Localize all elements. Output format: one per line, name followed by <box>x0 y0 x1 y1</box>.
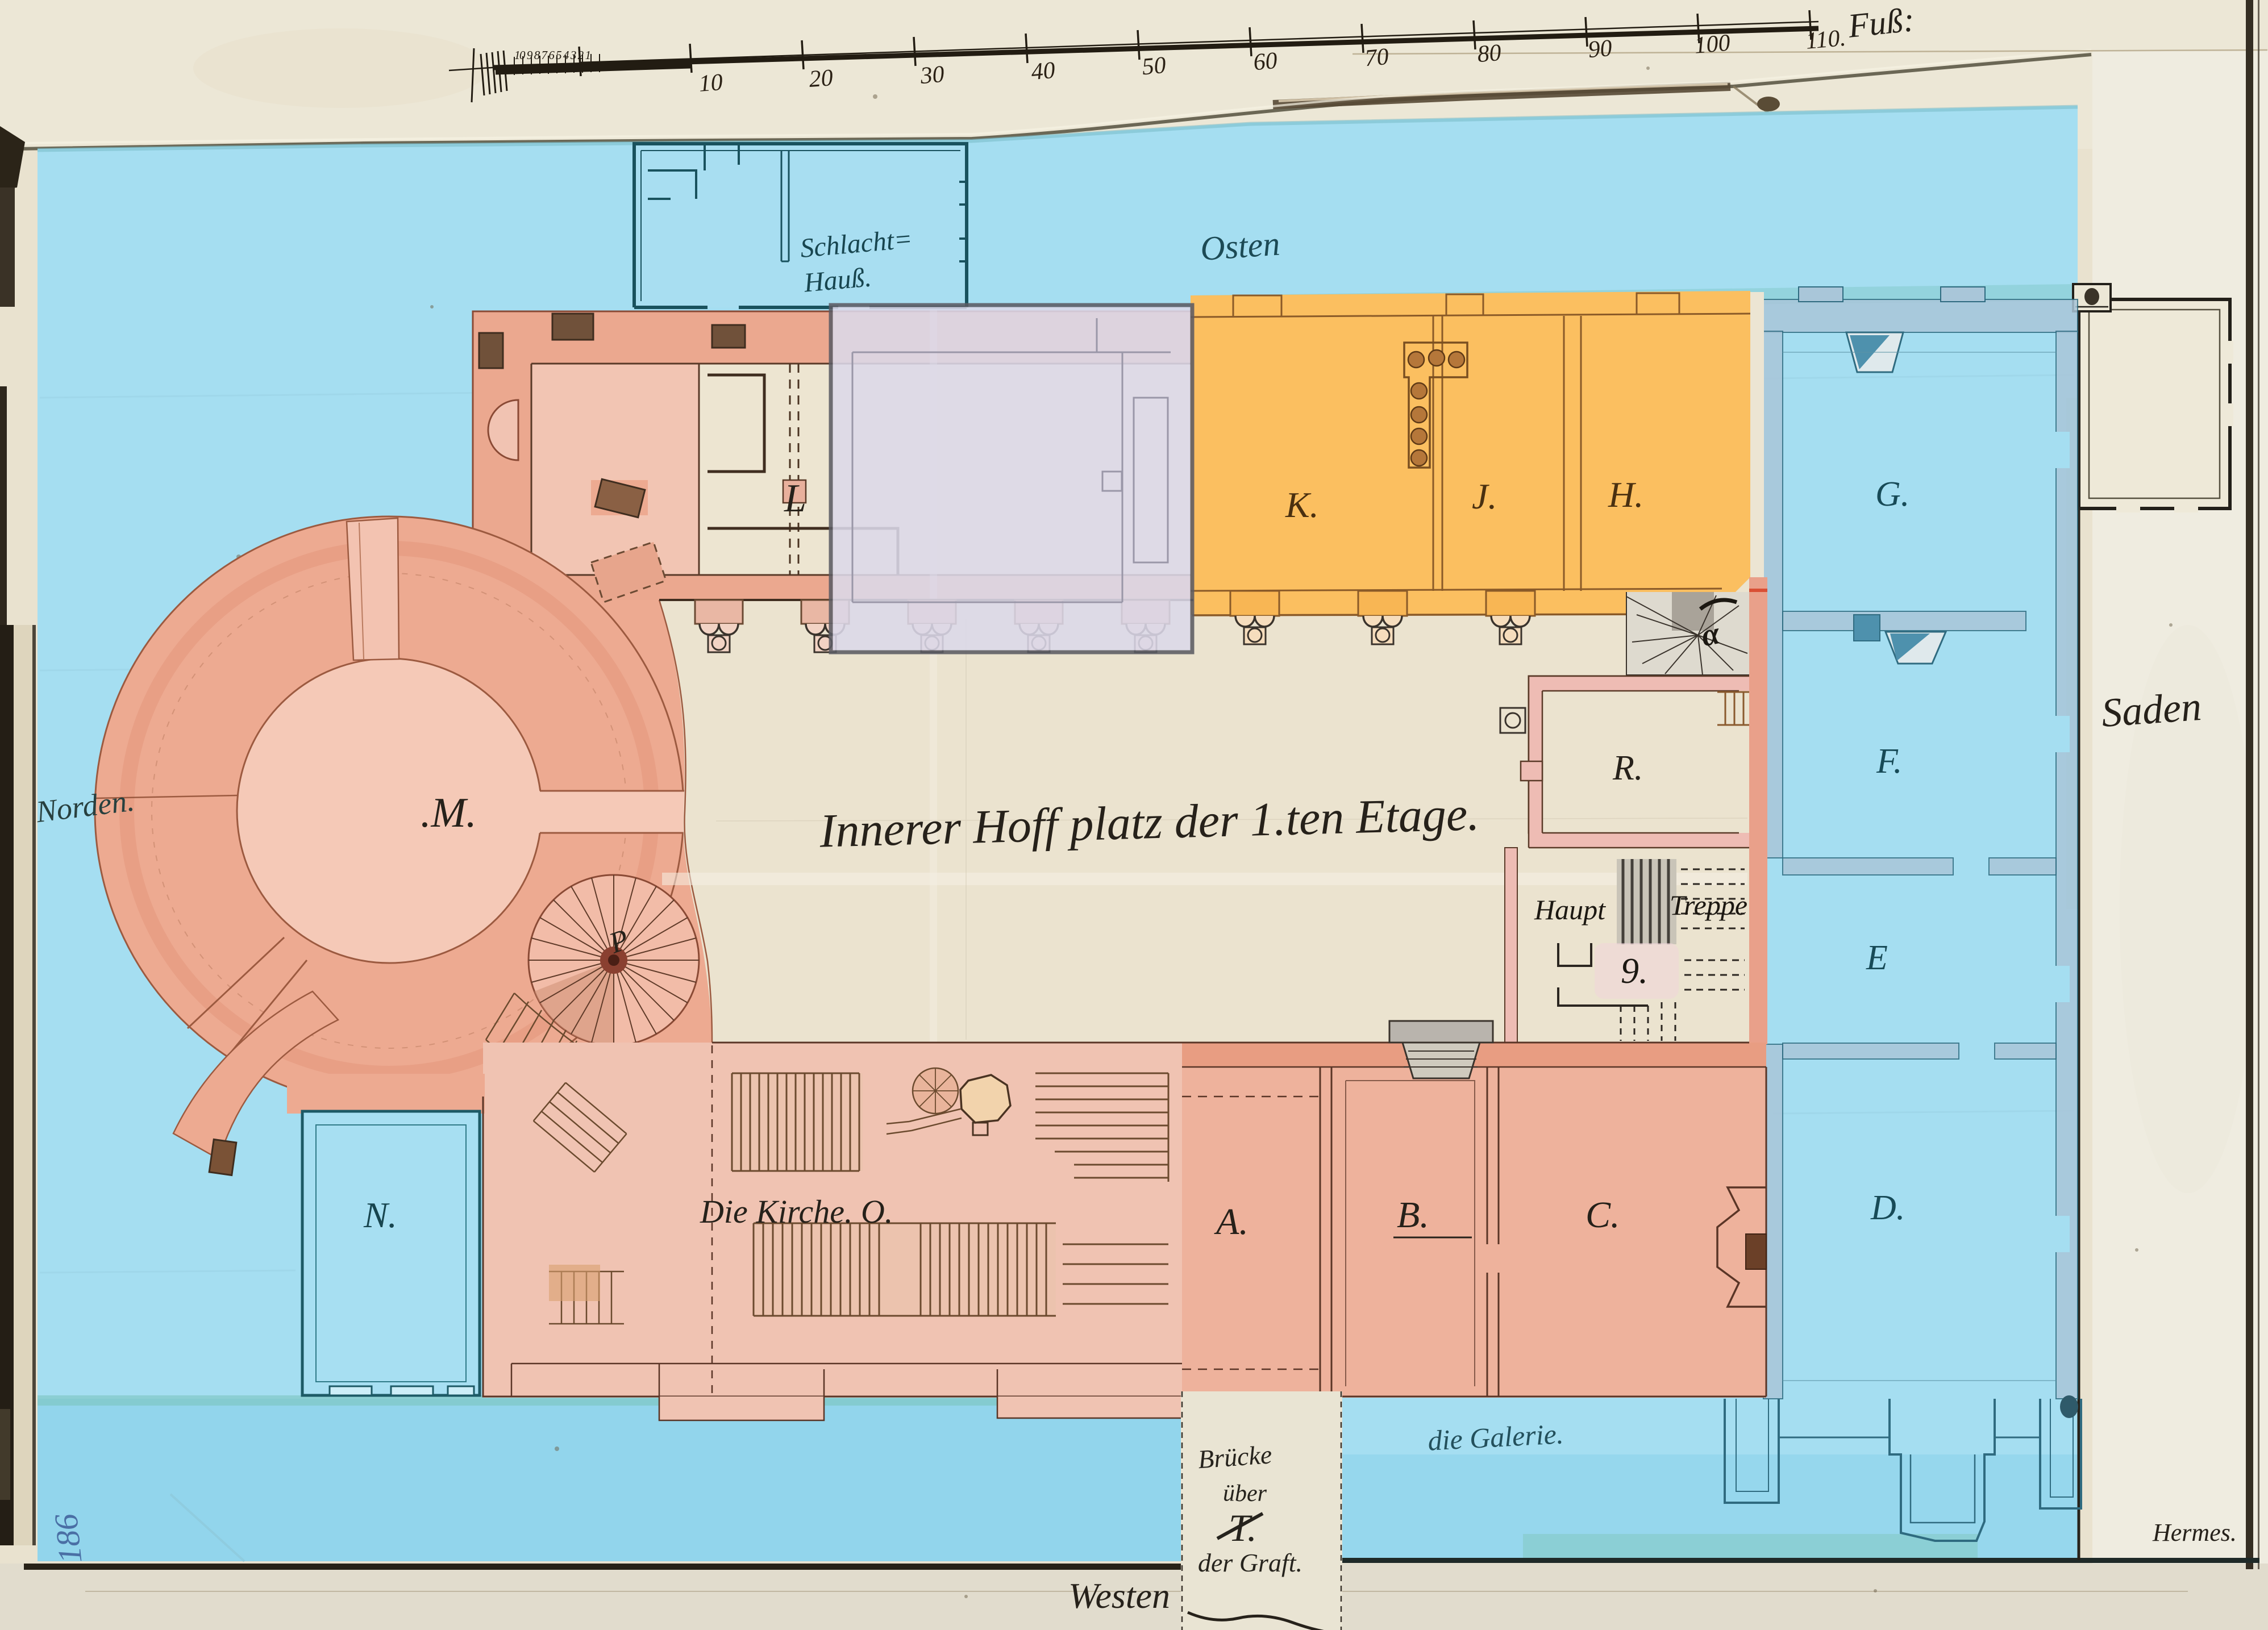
svg-text:70: 70 <box>1364 44 1390 72</box>
svg-text:D.: D. <box>1870 1189 1905 1227</box>
svg-text:186: 186 <box>47 1512 89 1565</box>
svg-text:Brücke: Brücke <box>1197 1440 1273 1474</box>
svg-text:10: 10 <box>698 69 723 97</box>
svg-text:Hermes.: Hermes. <box>2152 1519 2237 1546</box>
svg-text:F.: F. <box>1876 742 1902 781</box>
svg-text:60: 60 <box>1252 48 1279 76</box>
svg-text:T.: T. <box>1229 1506 1257 1549</box>
svg-text:über: über <box>1223 1481 1267 1507</box>
svg-text:Treppe: Treppe <box>1670 889 1747 921</box>
svg-text:Osten: Osten <box>1199 224 1281 268</box>
svg-text:A.: A. <box>1214 1201 1249 1243</box>
svg-text:der Graft.: der Graft. <box>1198 1548 1302 1577</box>
svg-text:H.: H. <box>1608 474 1643 515</box>
svg-text:90: 90 <box>1587 35 1613 63</box>
svg-text:100: 100 <box>1693 30 1732 59</box>
svg-text:9.: 9. <box>1621 951 1648 991</box>
svg-text:E: E <box>1866 939 1888 977</box>
svg-text:B.: B. <box>1397 1194 1429 1236</box>
svg-text:J.: J. <box>1472 476 1497 516</box>
svg-text:C.: C. <box>1585 1194 1620 1236</box>
svg-text:Westen: Westen <box>1068 1575 1170 1616</box>
svg-text:K.: K. <box>1285 485 1319 525</box>
svg-text:Haupt: Haupt <box>1534 894 1606 926</box>
svg-text:G.: G. <box>1875 475 1909 514</box>
svg-text:.M.: .M. <box>421 790 477 836</box>
svg-text:80: 80 <box>1476 40 1503 68</box>
svg-text:Hauß.: Hauß. <box>802 262 873 298</box>
svg-text:Die Kirche. O.: Die Kirche. O. <box>700 1193 893 1230</box>
svg-text:Fuß:: Fuß: <box>1846 1 1916 45</box>
svg-text:R.: R. <box>1612 749 1643 787</box>
svg-text:Saden: Saden <box>2100 683 2203 736</box>
svg-text:50: 50 <box>1141 52 1167 80</box>
svg-text:30: 30 <box>919 61 946 90</box>
svg-text:20: 20 <box>808 65 834 93</box>
svg-text:N.: N. <box>363 1195 397 1235</box>
svg-text:L: L <box>784 477 806 520</box>
svg-text:40: 40 <box>1030 57 1056 85</box>
svg-text:110.: 110. <box>1805 25 1847 55</box>
svg-text:10 9 8 7 6 5 4 3 2 1: 10 9 8 7 6 5 4 3 2 1 <box>514 48 591 62</box>
